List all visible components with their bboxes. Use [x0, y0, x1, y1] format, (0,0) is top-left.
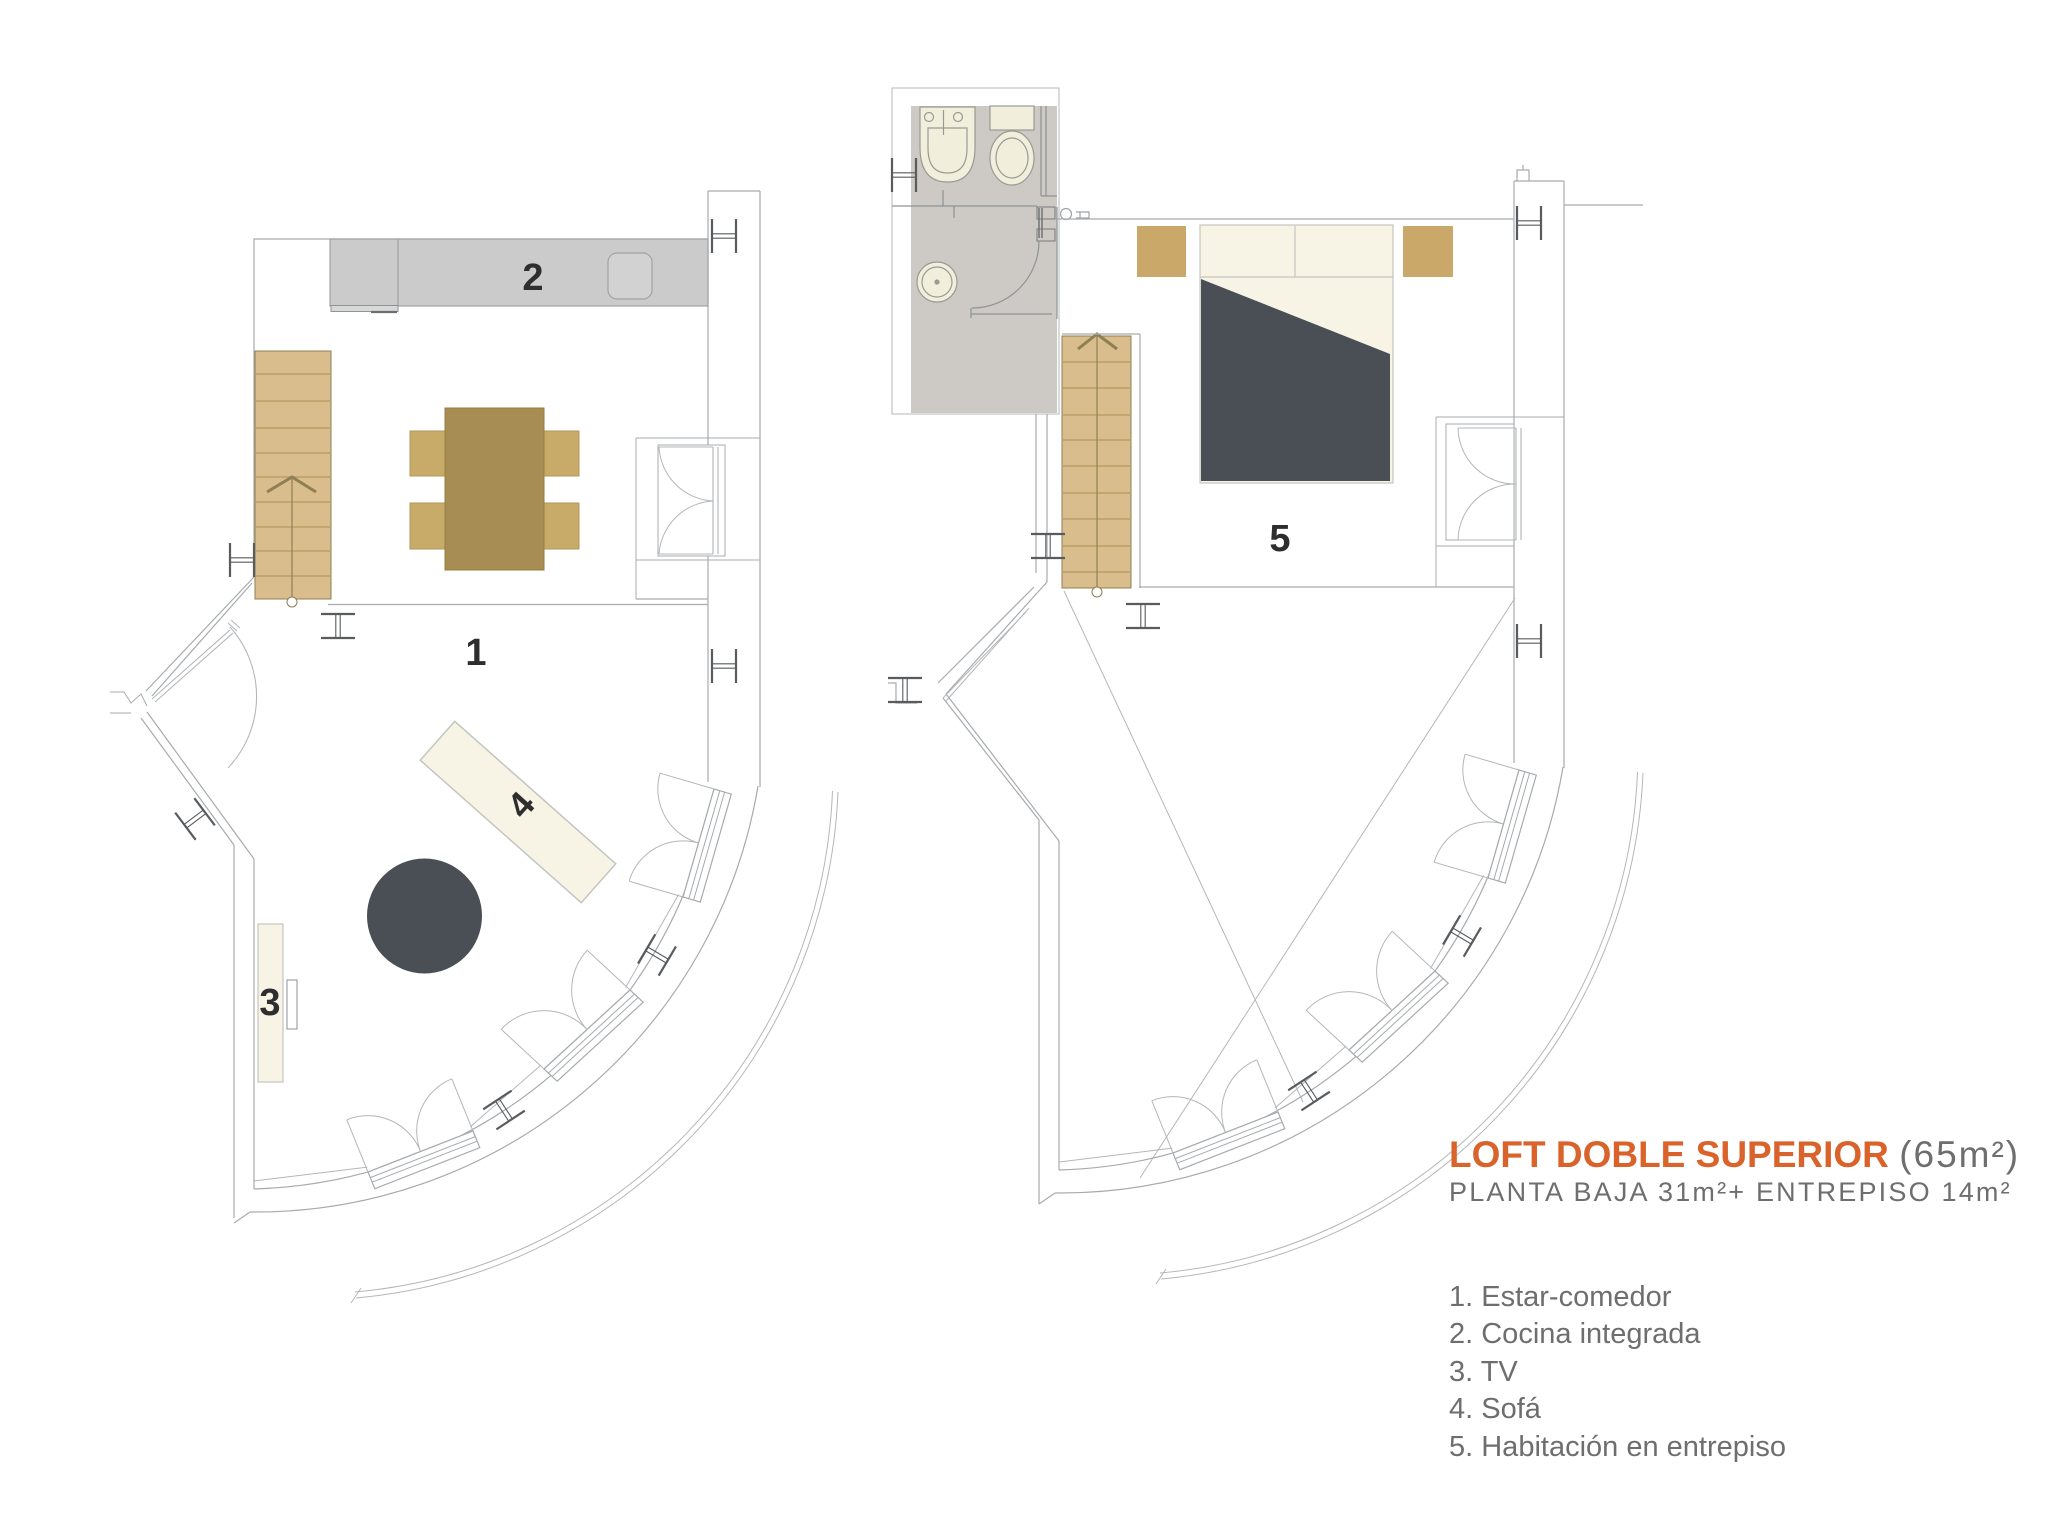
svg-text:PLANTA BAJA 31m²+ ENTREPISO 14: PLANTA BAJA 31m²+ ENTREPISO 14m² — [1449, 1177, 2012, 1207]
svg-text:2: 2 — [522, 257, 543, 299]
svg-text:4. Sofá: 4. Sofá — [1449, 1393, 1542, 1425]
svg-text:1. Estar-comedor: 1. Estar-comedor — [1449, 1281, 1672, 1313]
svg-text:LOFT DOBLE SUPERIOR (65m²): LOFT DOBLE SUPERIOR (65m²) — [1449, 1134, 2020, 1175]
svg-text:5. Habitación en entrepiso: 5. Habitación en entrepiso — [1449, 1431, 1786, 1463]
svg-text:1: 1 — [465, 632, 486, 674]
svg-text:3. TV: 3. TV — [1449, 1356, 1518, 1388]
svg-text:5: 5 — [1269, 518, 1290, 560]
svg-text:3: 3 — [259, 982, 280, 1024]
svg-text:2. Cocina integrada: 2. Cocina integrada — [1449, 1318, 1701, 1350]
